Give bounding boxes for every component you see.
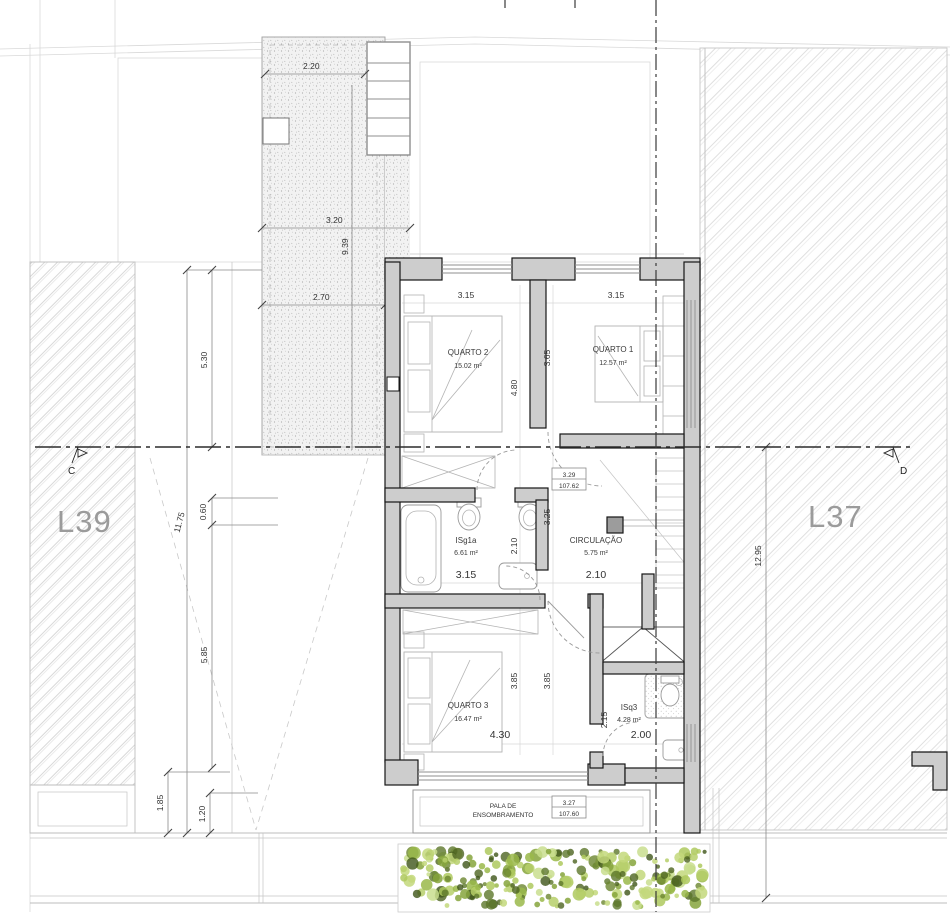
section-label-c: C (68, 466, 75, 477)
room-label-circulacao: CIRCULAÇÃO (570, 536, 622, 545)
dim-courtyard-9-39: 9.39 (340, 238, 350, 255)
toilet-isq3 (661, 676, 679, 706)
bed-quarto-2 (404, 295, 502, 452)
dim-bath-width: 3.15 (456, 569, 477, 581)
level-markers: 3.29 107.62 3.27 107.60 (552, 468, 586, 818)
dim-courtyard-3-20: 3.20 (326, 215, 343, 225)
dim-left-1-85: 1.85 (155, 794, 165, 811)
room-label-quarto-2: QUARTO 2 (448, 348, 489, 357)
hedge-planting (398, 844, 710, 912)
dim-q1-width: 3.15 (608, 290, 625, 300)
section-label-d: D (900, 466, 907, 477)
dim-bath-depth: 2.10 (509, 537, 519, 554)
room-area-isg1a: 6.61 m² (454, 550, 478, 557)
parcel-right-l37: L37 (700, 48, 947, 830)
pala-de-ensombramento: PALA DE ENSOMBRAMENTO (413, 790, 650, 833)
dim-courtyard-2-20: 2.20 (303, 61, 320, 71)
sink-isg1a (499, 563, 537, 589)
courtyard-detail-box (263, 118, 289, 144)
level-marker-pala: 3.27 107.60 (552, 796, 586, 818)
floor-plan-drawing: L39 L37 2.20 3.20 9.39 (0, 0, 950, 917)
pala-label-line2: ENSOMBRAMENTO (473, 812, 534, 819)
dim-left-5-30: 5.30 (199, 351, 209, 368)
level-value-upper: 3.29 (563, 472, 576, 479)
floor-plan-page: L39 L37 2.20 3.20 9.39 (0, 0, 950, 917)
toilet-isg1a (457, 498, 481, 530)
level-elevation-upper: 107.62 (559, 483, 579, 490)
room-area-isq3: 4.28 m² (617, 717, 641, 724)
dim-isq3-width: 2.00 (631, 729, 652, 741)
room-label-isq3: ISq3 (621, 703, 638, 712)
room-area-quarto-1: 12.57 m² (599, 360, 627, 367)
plot-label-l37: L37 (808, 499, 863, 534)
room-area-quarto-3: 16.47 m² (454, 716, 482, 723)
dim-left-5-85: 5.85 (199, 646, 209, 663)
pergola-slats (367, 42, 410, 155)
dim-courtyard-2-70: 2.70 (313, 292, 330, 302)
dim-q3-depth-b: 3.85 (542, 672, 552, 689)
room-label-quarto-3: QUARTO 3 (448, 701, 489, 710)
room-label-isg1a: ISg1a (456, 536, 477, 545)
room-area-circulacao: 5.75 m² (584, 550, 608, 557)
dim-q1-depth: 3.65 (542, 349, 552, 366)
room-area-quarto-2: 15.02 m² (454, 363, 482, 370)
pala-label-line1: PALA DE (490, 803, 517, 810)
level-value-pala: 3.27 (563, 800, 576, 807)
dim-isq3-depth: 2.15 (599, 711, 609, 728)
dim-left-1-20: 1.20 (197, 805, 207, 822)
wardrobe-quarto-2 (402, 456, 495, 488)
dim-left-0-60: 0.60 (198, 503, 208, 520)
dim-q2-width: 3.15 (458, 290, 475, 300)
dim-circ-width: 2.10 (586, 569, 607, 581)
bathtub (401, 505, 441, 592)
staircase (598, 455, 697, 665)
room-label-quarto-1: QUARTO 1 (593, 345, 634, 354)
level-elevation-pala: 107.60 (559, 811, 579, 818)
dim-q2-depth: 4.80 (509, 379, 519, 396)
level-marker-upper: 3.29 107.62 (552, 468, 586, 490)
dim-mid-3-25: 3.25 (542, 508, 552, 525)
stair-void-triangle (598, 627, 688, 665)
dim-left-11-75: 11.75 (172, 511, 187, 534)
dim-q3-depth-a: 3.85 (509, 672, 519, 689)
wardrobe-quarto-1 (663, 296, 685, 446)
dim-q3-width: 4.30 (490, 729, 511, 741)
wardrobe-quarto-3 (403, 610, 538, 634)
plot-label-l39: L39 (57, 504, 112, 539)
dim-right-12-95: 12.95 (753, 545, 763, 567)
